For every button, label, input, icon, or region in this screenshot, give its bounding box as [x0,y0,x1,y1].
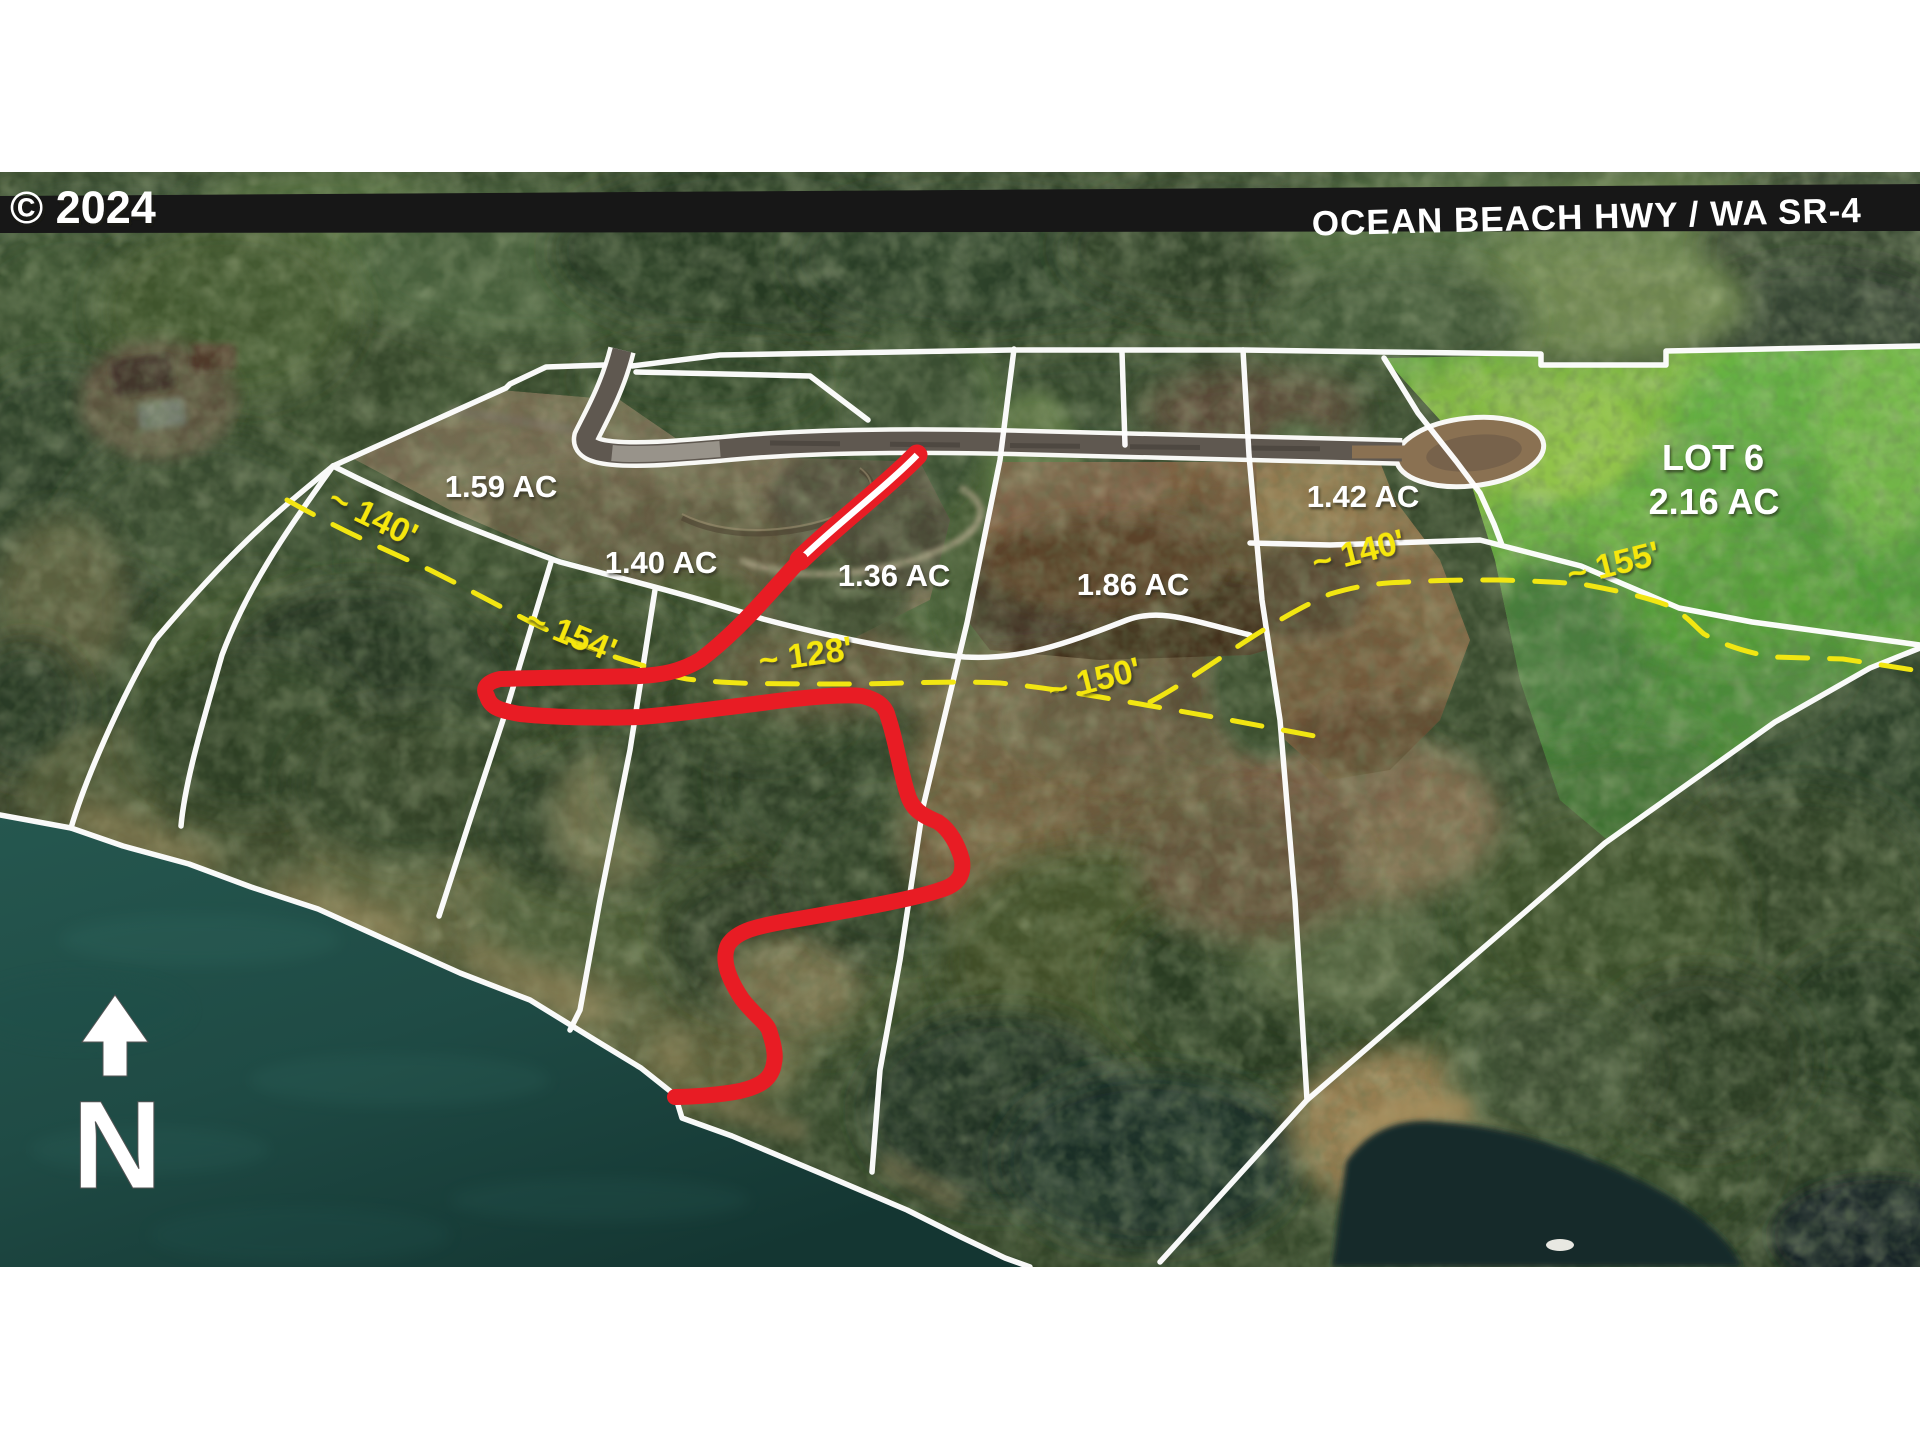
svg-text:1.59 AC: 1.59 AC [445,469,558,504]
svg-text:2.16 AC: 2.16 AC [1649,481,1780,522]
svg-text:© 2024: © 2024 [10,182,156,233]
svg-text:1.42 AC: 1.42 AC [1307,479,1420,514]
svg-text:N: N [72,1076,162,1215]
svg-text:LOT 6: LOT 6 [1662,437,1764,478]
svg-text:1.36 AC: 1.36 AC [838,558,951,593]
svg-text:1.86 AC: 1.86 AC [1077,567,1190,602]
svg-text:1.40 AC: 1.40 AC [605,545,718,580]
